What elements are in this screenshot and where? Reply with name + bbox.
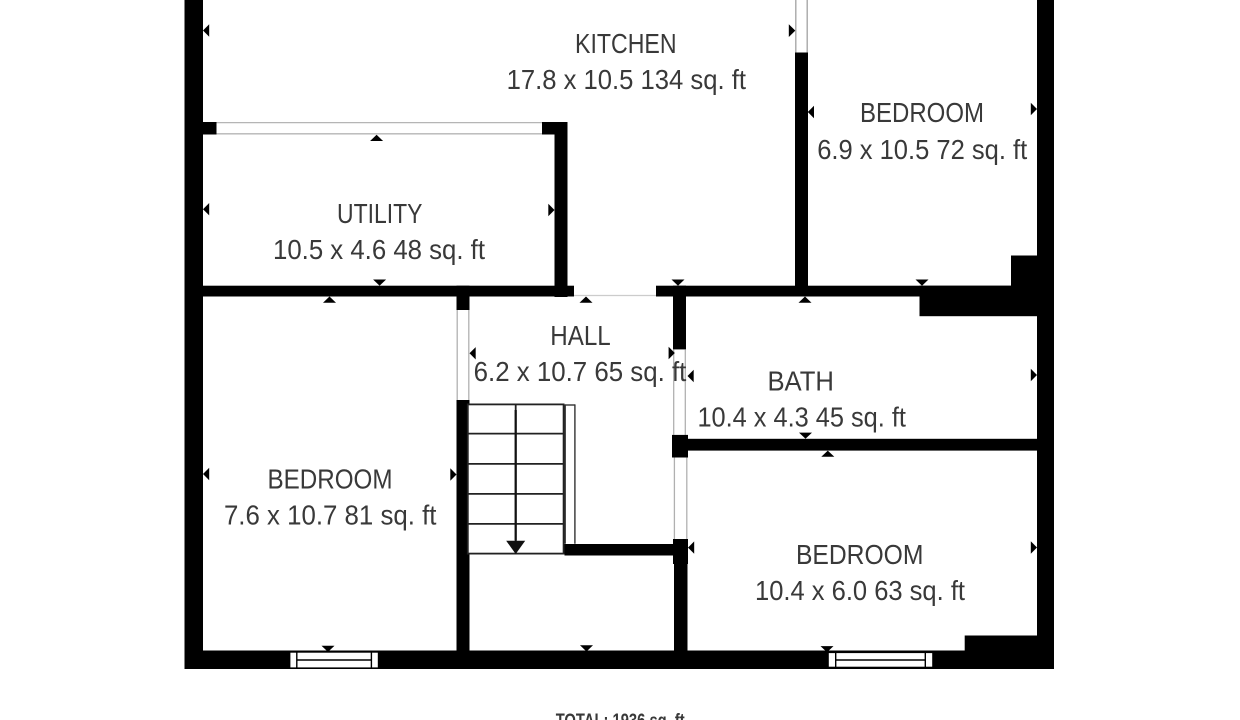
svg-text:10.4 x 6.0 63 sq. ft: 10.4 x 6.0 63 sq. ft xyxy=(755,575,965,606)
svg-text:6.2 x 10.7 65 sq. ft: 6.2 x 10.7 65 sq. ft xyxy=(474,356,687,387)
svg-text:BEDROOM: BEDROOM xyxy=(268,463,393,494)
svg-text:HALL: HALL xyxy=(550,320,611,351)
svg-text:TOTAL: 1936 sq. ft: TOTAL: 1936 sq. ft xyxy=(556,711,686,720)
svg-text:7.6 x 10.7 81 sq. ft: 7.6 x 10.7 81 sq. ft xyxy=(224,499,437,530)
svg-text:BATH: BATH xyxy=(767,365,834,396)
svg-text:10.5 x 4.6 48 sq. ft: 10.5 x 4.6 48 sq. ft xyxy=(273,234,485,265)
svg-text:10.4 x 4.3 45 sq. ft: 10.4 x 4.3 45 sq. ft xyxy=(697,401,906,432)
svg-text:BEDROOM: BEDROOM xyxy=(796,539,924,570)
svg-text:UTILITY: UTILITY xyxy=(337,198,423,229)
svg-text:17.8 x 10.5 134 sq. ft: 17.8 x 10.5 134 sq. ft xyxy=(507,64,747,95)
svg-text:BEDROOM: BEDROOM xyxy=(860,97,984,128)
svg-text:KITCHEN: KITCHEN xyxy=(575,28,677,59)
svg-text:6.9 x 10.5 72 sq. ft: 6.9 x 10.5 72 sq. ft xyxy=(817,134,1027,165)
